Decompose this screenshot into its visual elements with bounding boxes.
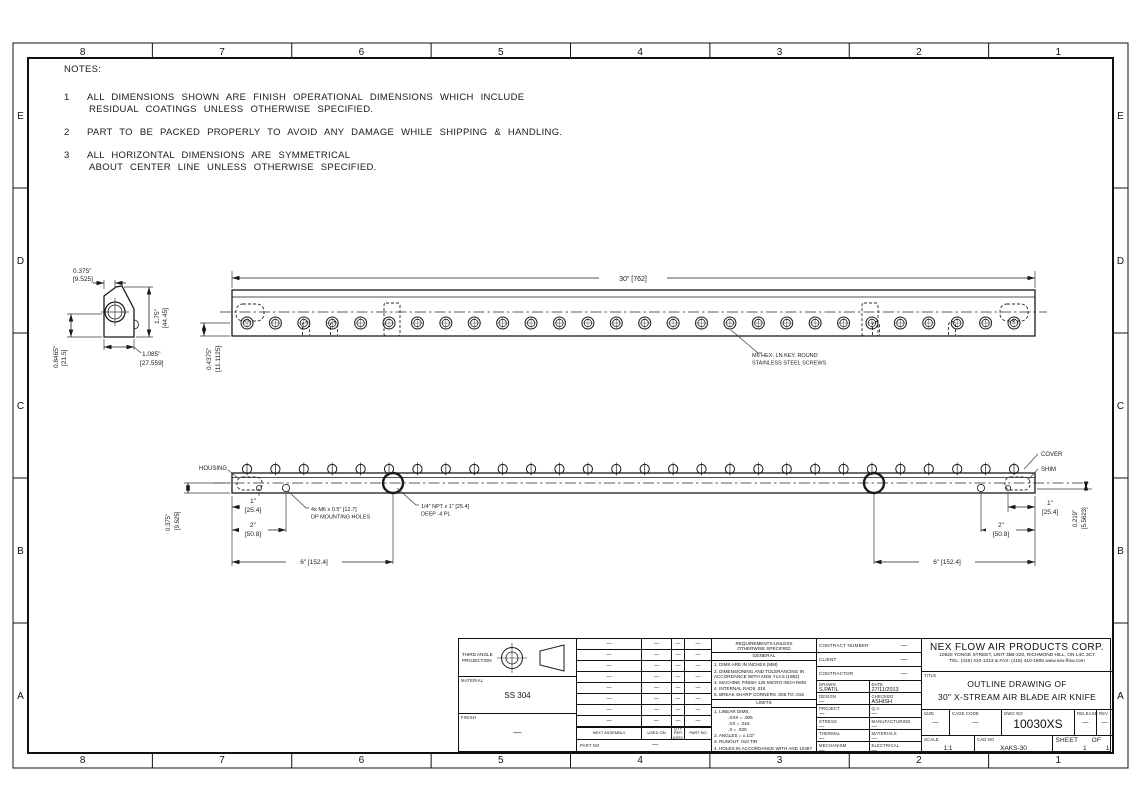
zone-row-right-B: B [1117,546,1124,557]
label-shim: SHIM [1041,467,1056,473]
parts-cell: — [642,672,672,683]
svg-text:DP MOUNTING HOLES: DP MOUNTING HOLES [311,515,371,521]
zone-col-bottom-6: 6 [359,755,365,766]
top-plan-view: 30" [762] 0.4375" [11.1125] M6 HEX. LN K… [200,271,1047,372]
approval-cell: THERMAL— [817,730,869,741]
zone-row-left-C: C [17,401,24,412]
rev-cell: REV — [1096,710,1112,735]
parts-cell: — [685,661,711,672]
zone-col-top-8: 8 [80,47,86,58]
approval-cell: ELECTRICAL— [869,742,922,754]
parts-cell: — [672,672,685,683]
dim-end-left: 0.8465" [53,345,60,368]
req-general-item: 5. BREAK SHARP CORNERS .005 TO .015 [714,692,814,698]
parts-cell: — [577,683,642,694]
zone-col-bottom-2: 2 [916,755,922,766]
requirements-block: REQUIREMENTS-UNLESS OTHERWISE SPECIFIED … [711,639,816,751]
approval-cell: DRAWNS.PATIL [817,681,869,692]
label-housing: HOUSING [199,466,227,472]
parts-cell: — [685,716,711,727]
contract-number-row: CONTRACT NUMBER — [817,639,921,653]
requirements-limits-title: LIMITS [712,699,816,708]
projection-cell: THIRD ANGLE PROJECTION [459,639,576,677]
req-limits-item: 3. RUNOUT .010 TIR [714,739,814,745]
svg-text:[25.4]: [25.4] [1042,509,1058,516]
company-block: NEX FLOW AIR PRODUCTS CORP. 10520 YONGE … [921,639,1112,751]
parts-cell: — [685,650,711,661]
parts-cell: — [642,716,672,727]
zone-row-right-E: E [1117,111,1124,122]
dwg-no-cell: DWG NO 10030XS [1001,710,1074,735]
approval-row: DESIGN—CHECKEDASHISH [817,693,921,705]
parts-cell: — [577,705,642,716]
approval-row: STRESS—MANUFACTURING— [817,718,921,730]
zone-col-top-4: 4 [637,47,643,58]
parts-cell: — [672,694,685,705]
page: { "zones": {"columns": ["8","7","6","5",… [0,0,1140,806]
svg-text:STAINLESS STEEL SCREWS: STAINLESS STEEL SCREWS [752,361,827,367]
parts-table: ———————————————————————————————— NEXT AS… [576,639,711,751]
approval-row: DRAWNS.PATILDATE27/11/2013 [817,681,921,693]
svg-text:[50.8]: [50.8] [245,531,261,538]
approval-cell: PROJECT— [817,705,869,716]
parts-cell: — [672,705,685,716]
bottom-elevation-view: HOUSING COVER SHIM 0.375" [9.525] 1" [25… [166,452,1092,566]
part-no-row: PART NO — [577,739,711,751]
dim-end-height: 1.75" [154,308,161,324]
svg-text:[11.1125]: [11.1125] [215,346,222,372]
mounting-holes-callout: 4x M6 x 0.5" [12.7] [311,507,357,513]
title-block-left-column: THIRD ANGLE PROJECTION MATERIAL SS 304 F… [459,639,576,751]
npt-callout: 1/4" NPT x 1" [25.4] [421,504,470,510]
parts-cell: — [672,683,685,694]
title-block: THIRD ANGLE PROJECTION MATERIAL SS 304 F… [458,638,1111,752]
notes-heading: NOTES: [64,64,562,75]
approval-cell: STRESS— [817,718,869,729]
zone-row-right-A: A [1117,691,1124,702]
parts-cell: — [672,661,685,672]
drawing-title-cell: TITLE OUTLINE DRAWING OF 30" X-STREAM AI… [922,671,1112,709]
parts-cell: — [642,683,672,694]
zone-col-bottom-1: 1 [1056,755,1062,766]
requirements-general-title: GENERAL [712,652,816,661]
material-value: SS 304 [459,691,576,700]
company-contact: TEL: (416) 410-1313 & FAX: (416) 410-180… [922,659,1112,665]
dim-end-bottom: 1.085" [142,351,161,358]
zone-row-right-D: D [1117,256,1124,267]
zone-col-bottom-8: 8 [80,755,86,766]
dim-end-top: 0.375" [73,268,92,275]
svg-text:[9.525]: [9.525] [73,276,93,283]
approval-cell: MECHANISM— [817,742,869,754]
zone-col-bottom-3: 3 [777,755,783,766]
dim-1in-right: 1" [1047,500,1054,507]
parts-cell: — [577,716,642,727]
parts-cell: — [672,716,685,727]
parts-cell: — [642,694,672,705]
zone-col-top-2: 2 [916,47,922,58]
part-no-value: — [600,742,711,748]
note-item-3: 3 ALL HORIZONTAL DIMENSIONS ARE SYMMETRI… [64,150,562,174]
finish-cell: FINISH — [459,714,576,750]
top-view-screws [241,317,1021,330]
req-limits-item: 2. ANGLES = ± 1/2° [714,733,814,739]
parts-cell: — [577,639,642,650]
third-angle-projection-icon [494,641,570,675]
dim-1in-left: 1" [250,498,257,505]
note-number: 1 [64,92,87,116]
parts-cell: — [685,672,711,683]
parts-cell: — [672,650,685,661]
parts-cell: — [577,650,642,661]
zone-col-bottom-5: 5 [498,755,504,766]
dim-6in-left: 6" [152.4] [300,559,328,566]
dim-6in-right: 6" [152.4] [933,559,961,566]
svg-text:[50.8]: [50.8] [993,531,1009,538]
zone-col-top-1: 1 [1056,47,1062,58]
note-item-2: 2 PART TO BE PACKED PROPERLY TO AVOID AN… [64,127,562,139]
parts-cell: — [642,661,672,672]
size-cell: SIZE — [922,710,949,735]
parts-cell: — [642,639,672,650]
approval-cell: DATE27/11/2013 [869,681,922,692]
req-general-item: 1. DIMS ARE IN INCHES (MM) [714,662,814,668]
zone-row-left-D: D [17,256,24,267]
approval-cell: MATERIALS— [869,730,922,741]
screw-callout: M6 HEX. LN KEY. ROUND [752,353,818,359]
zone-col-bottom-7: 7 [219,755,225,766]
zone-col-top-7: 7 [219,47,225,58]
dim-gap: 0.219" [1073,510,1079,527]
req-limits-item: .X = .030 [714,727,814,733]
approval-cell: Q.A.— [869,705,922,716]
dim-overall-length: 30" [762] [619,276,647,283]
client-row: CLIENT — [817,653,921,667]
dim-2in-left: 2" [250,522,257,529]
parts-cell: — [685,683,711,694]
zone-row-right-C: C [1117,401,1124,412]
svg-text:[5.5623]: [5.5623] [1082,507,1088,529]
size-row: SIZE — CAGE CODE — DWG NO 10030XS RELEAS… [922,709,1112,735]
svg-text:[9.525]: [9.525] [175,511,181,530]
dim-screw-offset: 0.4375" [206,347,213,370]
approval-row: MECHANISM—ELECTRICAL— [817,742,921,754]
sheet-number: 1 [1083,745,1087,752]
dwg-no-value: 10030XS [1002,717,1074,731]
req-general-item: 3. MACHINE FINISH 125 MICRO INCH RMS [714,680,814,686]
req-limits-item: 1. LINEAR DIMS. [714,709,814,715]
approval-row: PROJECT—Q.A.— [817,705,921,717]
scale-cell: SCALE 1:1 [922,736,974,754]
note-number: 2 [64,127,87,139]
parts-cell: — [685,694,711,705]
end-profile-view: 0.375" [9.525] 1.75" [44.45] 0.8465" [21… [53,268,169,368]
approval-row: THERMAL—MATERIALS— [817,730,921,742]
svg-text:[25.4]: [25.4] [245,507,261,514]
material-cell: MATERIAL SS 304 [459,677,576,714]
parts-cell: — [672,639,685,650]
cad-no-cell: CAD NO XAKS-30 [974,736,1052,754]
approval-block: CONTRACT NUMBER — CLIENT — CONTRACTOR — … [816,639,921,751]
scale-row: SCALE 1:1 CAD NO XAKS-30 SHEET 1 OF 1 [922,735,1112,754]
parts-cell: — [642,650,672,661]
notes-block: NOTES: 1 ALL DIMENSIONS SHOWN ARE FINISH… [64,64,562,185]
parts-cell: — [642,705,672,716]
note-number: 3 [64,150,87,174]
sheet-cell: SHEET 1 OF 1 [1052,736,1112,754]
parts-cell: — [685,639,711,650]
drawing-title-line1: OUTLINE DRAWING OF [922,672,1112,689]
svg-text:DEEP -4 PL: DEEP -4 PL [421,512,451,518]
top-view-hidden-features [236,303,1028,336]
req-general-item: 4. INTERNAL RADII .015 [714,686,814,692]
svg-text:[27.559]: [27.559] [140,360,164,367]
req-limits-item: .XX = .015 [714,721,814,727]
zone-col-bottom-4: 4 [637,755,643,766]
parts-cell: — [577,672,642,683]
approval-cell: DESIGN— [817,693,869,704]
dim-2in-right: 2" [998,522,1005,529]
release-cell: RELEASE — [1074,710,1096,735]
svg-text:[44.45]: [44.45] [162,308,169,328]
parts-cell: — [577,661,642,672]
svg-text:[21.5]: [21.5] [61,350,68,366]
drawing-title-line2: 30" X-STREAM AIR BLADE AIR KNIFE [922,689,1112,702]
req-general-item: 2. DIMENSIONING AND TOLERANCING IN ACCOR… [714,669,814,680]
approval-cell: MANUFACTURING— [869,718,922,729]
sheet-total: 1 [1106,745,1110,752]
zone-row-left-A: A [17,691,24,702]
parts-cell: — [685,705,711,716]
req-limits-item: .XXX = .005 [714,715,814,721]
projection-label: THIRD ANGLE PROJECTION [462,652,494,663]
finish-value: — [459,728,576,737]
zone-row-left-B: B [17,546,24,557]
zone-row-left-E: E [17,111,24,122]
parts-cell: — [577,694,642,705]
zone-col-top-5: 5 [498,47,504,58]
req-limits-item: 4. HOLES IN ACCORDANCE WITH AND 10387 [714,746,814,752]
cage-code-cell: CAGE CODE — [949,710,1001,735]
note-item-1: 1 ALL DIMENSIONS SHOWN ARE FINISH OPERAT… [64,92,562,116]
company-name: NEX FLOW AIR PRODUCTS CORP. [922,639,1112,653]
contractor-row: CONTRACTOR — [817,667,921,681]
zone-col-top-3: 3 [777,47,783,58]
approval-cell: CHECKEDASHISH [869,693,922,704]
dim-slot-height: 0.375" [166,514,172,531]
label-cover: COVER [1041,452,1063,458]
zone-col-top-6: 6 [359,47,365,58]
